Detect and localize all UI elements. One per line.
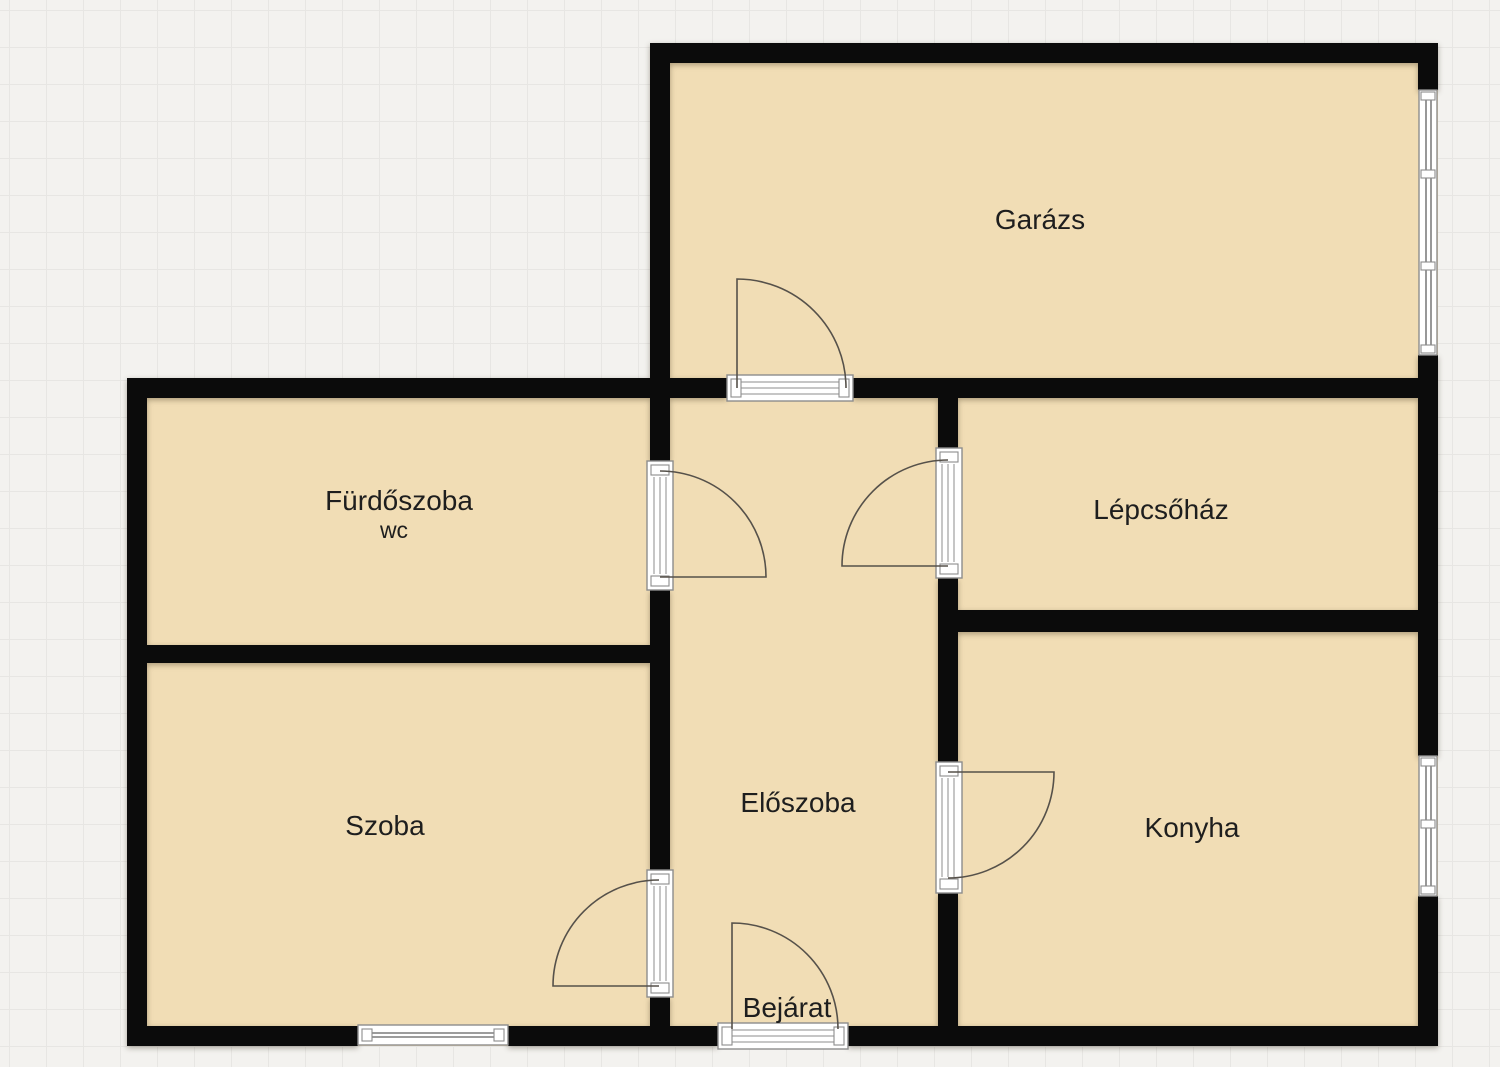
window-frame <box>1419 90 1437 355</box>
wall-segment <box>508 1026 718 1046</box>
room-label-konyha: Konyha <box>1145 812 1240 843</box>
window-mullion <box>1421 170 1435 178</box>
wall-segment <box>650 398 670 461</box>
floorplan-drawing: Garázs Fürdőszoba wc Lépcsőház Szoba Elő… <box>0 0 1500 1067</box>
wall-segment <box>1418 43 1438 90</box>
room-sublabel-wc: wc <box>379 517 408 543</box>
wall-segment <box>650 43 1438 63</box>
window-cap <box>1421 345 1435 353</box>
window-cap <box>1421 886 1435 894</box>
wall-segment <box>938 398 958 448</box>
wall-segment <box>650 43 670 398</box>
door-cap <box>651 874 669 884</box>
room-label-szoba: Szoba <box>345 810 425 841</box>
entrance-label: Bejárat <box>743 992 832 1023</box>
door-cap <box>651 465 669 475</box>
wall-segment <box>938 893 958 1046</box>
floorplan-canvas[interactable]: Garázs Fürdőszoba wc Lépcsőház Szoba Elő… <box>0 0 1500 1067</box>
window-mullion <box>1421 262 1435 270</box>
wall-segment <box>938 610 1438 632</box>
room-label-eloszoba: Előszoba <box>740 787 856 818</box>
wall-segment <box>650 997 670 1046</box>
door-threshold <box>936 448 962 578</box>
wall-segment <box>650 590 670 870</box>
door-cap <box>722 1027 732 1045</box>
window-mullion <box>1421 820 1435 828</box>
room-szoba[interactable] <box>147 663 650 1026</box>
door-cap <box>834 1027 844 1045</box>
window-garage[interactable] <box>1419 90 1437 355</box>
wall-segment <box>1418 378 1438 756</box>
window-cap <box>494 1029 504 1041</box>
room-label-garazs: Garázs <box>995 204 1085 235</box>
door-cap <box>940 766 958 776</box>
room-label-lepcsohaz: Lépcsőház <box>1093 494 1228 525</box>
room-label-furdoszoba: Fürdőszoba <box>325 485 473 516</box>
door-cap <box>839 379 849 397</box>
door-cap <box>731 379 741 397</box>
wall-segment <box>848 1026 1438 1046</box>
wall-segment <box>127 378 727 398</box>
window-cap <box>1421 758 1435 766</box>
window-cap <box>1421 92 1435 100</box>
wall-segment <box>938 578 958 762</box>
door-threshold <box>936 762 962 893</box>
wall-segment <box>1418 896 1438 1046</box>
window-szoba[interactable] <box>358 1025 508 1045</box>
door-cap <box>940 879 958 889</box>
window-konyha[interactable] <box>1419 756 1437 896</box>
wall-segment <box>853 378 1438 398</box>
room-eloszoba[interactable] <box>670 398 938 1026</box>
wall-segment <box>127 645 670 663</box>
door-cap <box>651 983 669 993</box>
window-cap <box>362 1029 372 1041</box>
wall-segment <box>127 1026 358 1046</box>
window-frame <box>358 1025 508 1045</box>
wall-segment <box>127 378 147 1046</box>
